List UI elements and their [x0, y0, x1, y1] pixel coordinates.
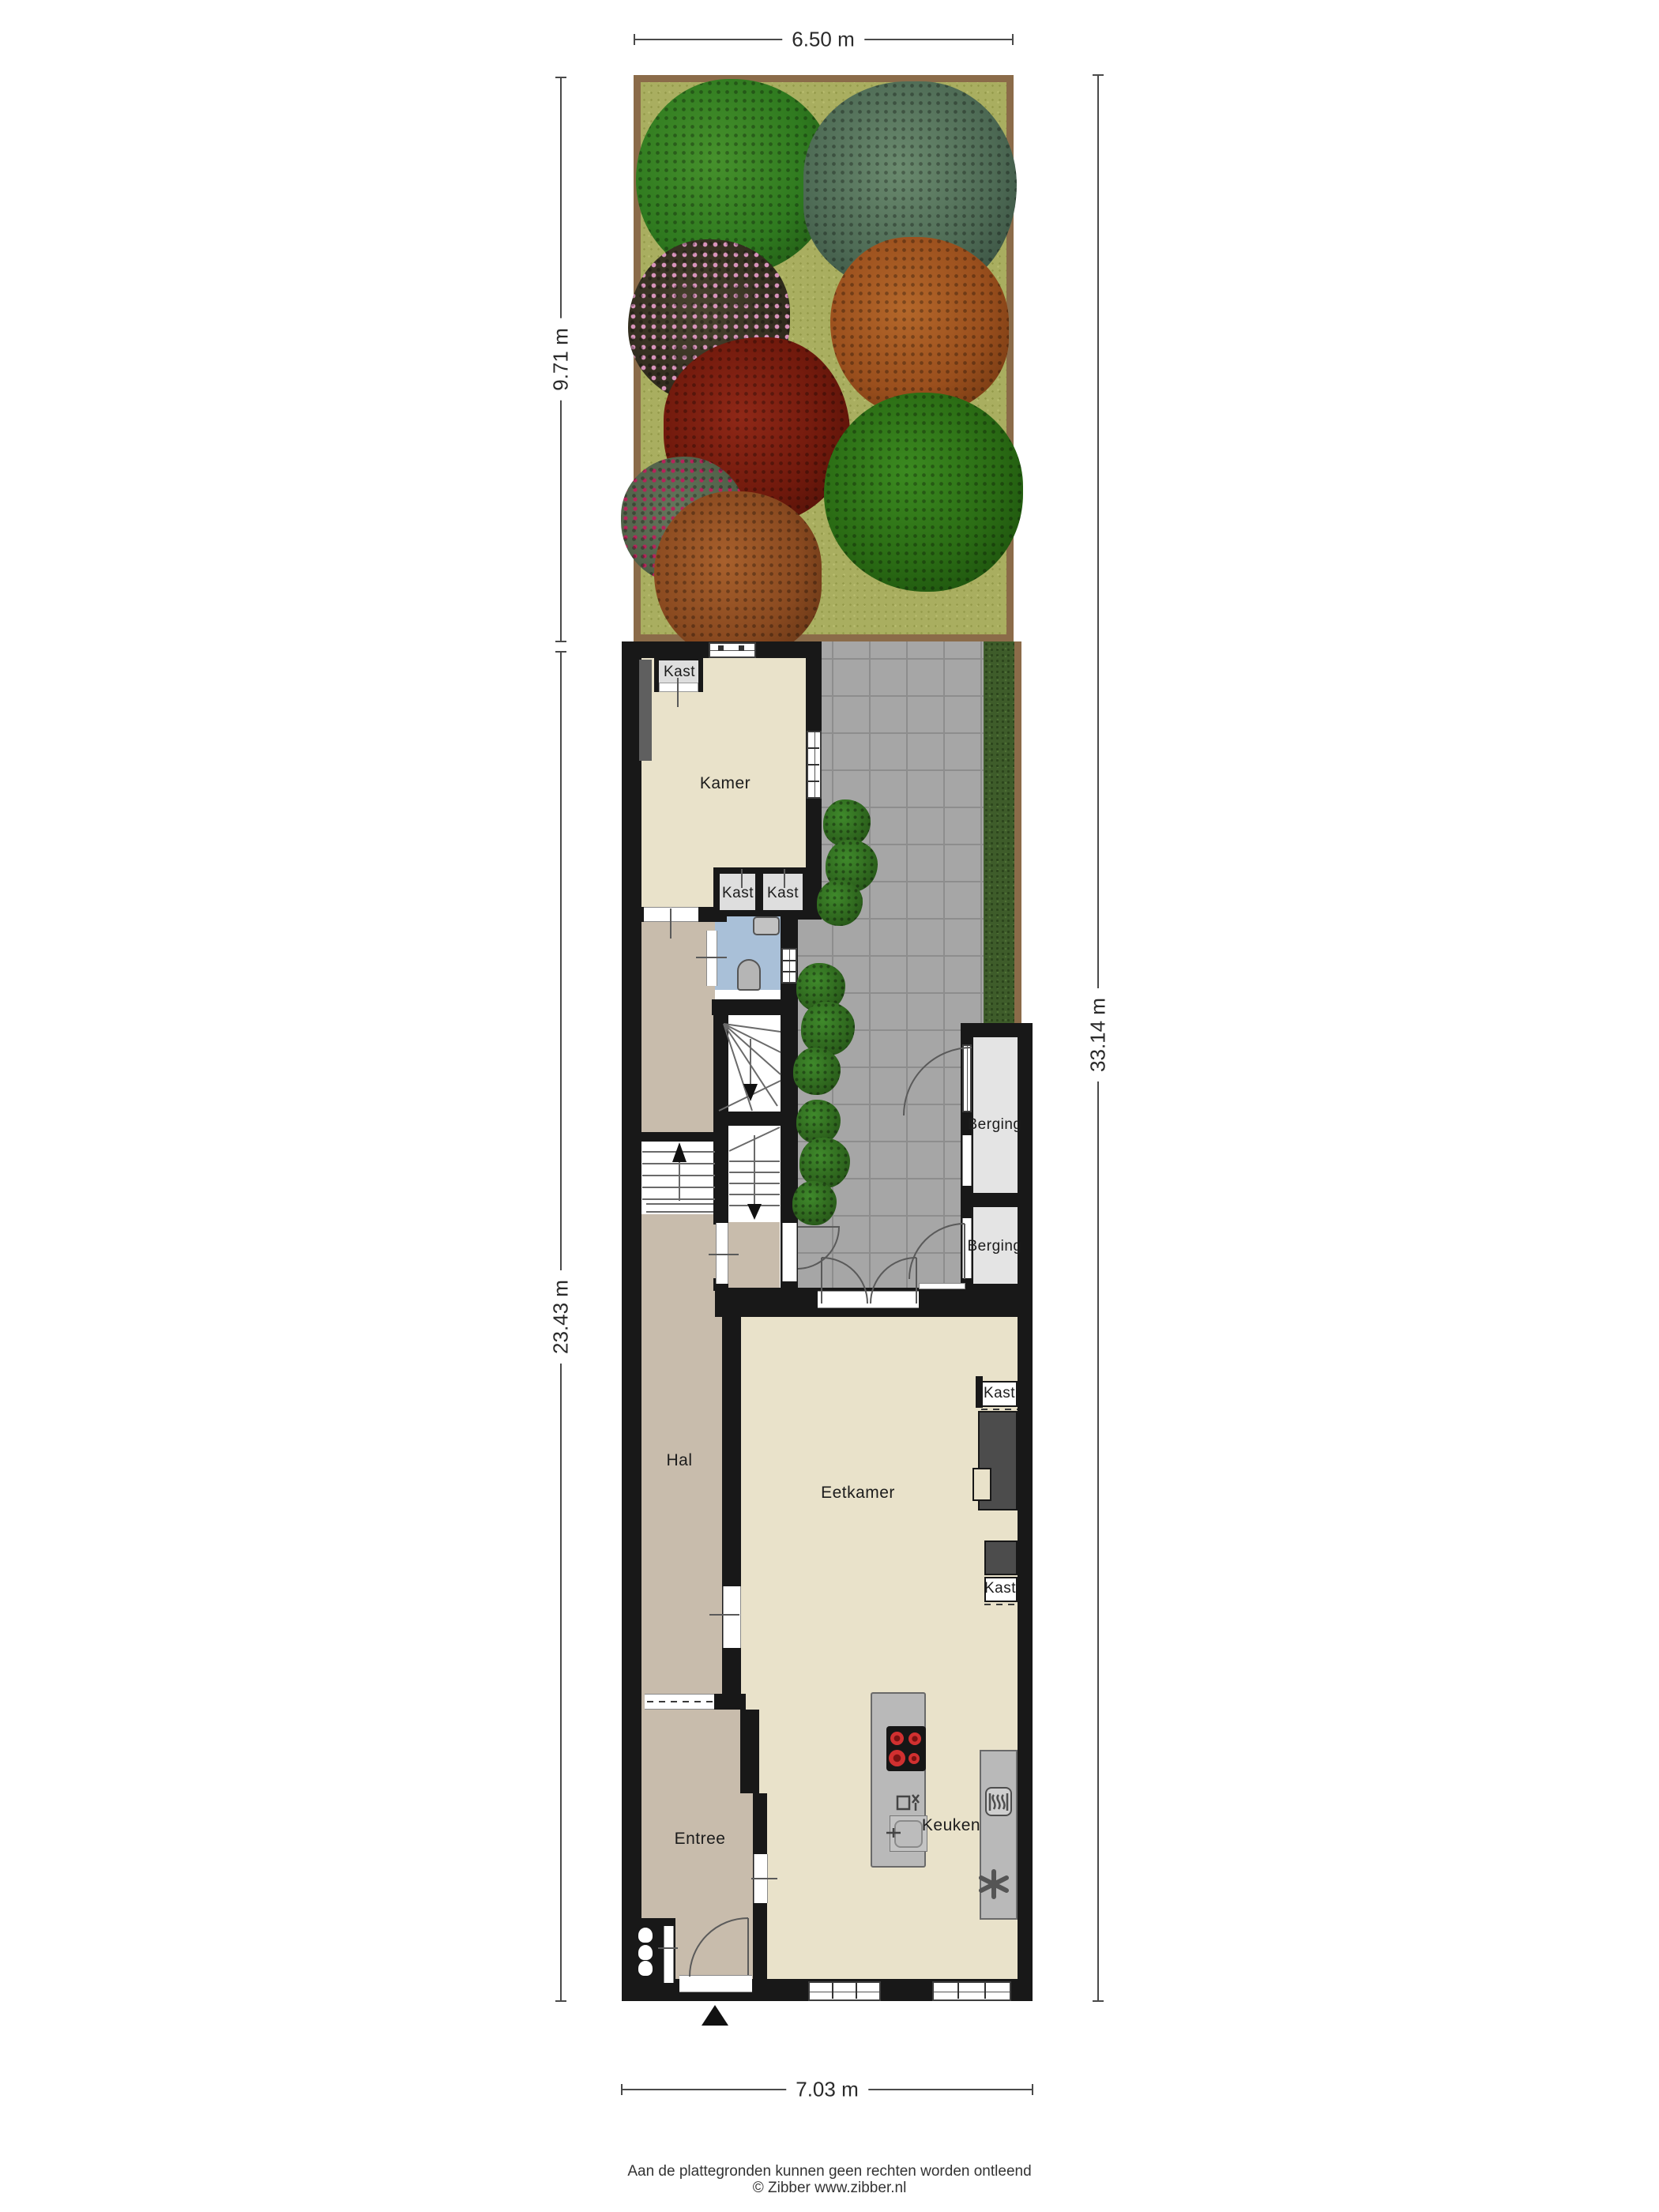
tree	[830, 237, 1009, 416]
bush	[792, 1181, 837, 1225]
fence	[1014, 641, 1021, 1023]
sink	[753, 916, 780, 935]
door-berging-upper	[962, 1135, 972, 1186]
window-berging	[962, 1044, 972, 1112]
front-door-opening	[679, 1975, 752, 1992]
wall	[740, 1710, 759, 1793]
lower-stairs	[728, 1126, 780, 1222]
burner	[908, 1732, 921, 1745]
meter-symbol	[638, 1961, 653, 1976]
wall	[641, 1132, 717, 1142]
meter-cupboard-door	[664, 1926, 674, 1983]
vestibule-floor	[728, 1222, 780, 1288]
garden	[634, 75, 1014, 641]
tree	[824, 393, 1023, 592]
room-label-berging: Berging	[968, 1238, 1022, 1255]
room-label-kast: Kast	[722, 885, 754, 902]
door-french	[818, 1291, 919, 1308]
wall	[717, 1112, 788, 1126]
disclaimer-text: Aan de plattegronden kunnen geen rechten…	[627, 2163, 1031, 2180]
door-hal-eetkamer	[723, 1586, 741, 1648]
bush	[817, 880, 863, 926]
wall	[622, 641, 641, 2001]
room-label-kast: Kast	[984, 1580, 1016, 1597]
meter-symbol	[638, 1945, 653, 1960]
bush-rust	[654, 491, 822, 659]
dimension-bottom-width: 7.03 m	[786, 2078, 868, 2102]
wall	[961, 1193, 1019, 1207]
room-eetkamer-floor	[741, 1317, 1018, 1983]
floorplan-page: Kamer Kast Kast Kast Berging Berging Hal…	[0, 0, 1659, 2212]
wall-panel	[639, 660, 652, 761]
entrance-arrow	[702, 2005, 728, 2026]
door-bathroom	[706, 931, 717, 986]
door-vestibule-right	[782, 1223, 797, 1281]
room-label-kast: Kast	[984, 1385, 1015, 1402]
closet-door	[659, 683, 698, 692]
window	[932, 1981, 1011, 2001]
copyright-text: © Zibber www.zibber.nl	[753, 2180, 907, 2197]
room-label-eetkamer: Eetkamer	[821, 1484, 895, 1503]
door-vestibule-left	[716, 1223, 728, 1284]
door-entree-eetkamer	[754, 1854, 768, 1903]
room-label-kamer: Kamer	[700, 774, 750, 793]
room-label-entree: Entree	[675, 1830, 726, 1849]
chimney-inset	[972, 1468, 991, 1501]
wall	[961, 1023, 1033, 1037]
room-label-kast: Kast	[664, 664, 695, 681]
dimension-garden-depth: 9.71 m	[549, 318, 574, 401]
hedge	[984, 641, 1014, 1023]
bush	[793, 1048, 841, 1095]
burner	[890, 1732, 904, 1745]
window	[781, 948, 797, 984]
window	[807, 731, 822, 799]
meter-symbol	[638, 1928, 653, 1943]
dimension-total-depth: 33.14 m	[1086, 988, 1111, 1082]
wall	[713, 1694, 746, 1710]
wall	[961, 1284, 1033, 1298]
room-label-berging: Berging	[968, 1116, 1022, 1134]
opening	[644, 907, 698, 922]
wall-right	[1018, 1023, 1033, 2001]
berging-upper-floor	[973, 1037, 1018, 1193]
bush	[799, 1138, 850, 1188]
hallway-floor	[641, 907, 724, 1710]
kitchen-counter	[980, 1750, 1018, 1920]
oven-icon	[985, 1787, 1012, 1816]
opening-hal-entree	[645, 1694, 714, 1710]
burner	[908, 1753, 920, 1764]
kitchen-sink-basin	[894, 1820, 923, 1848]
straight-stairs	[641, 1140, 717, 1214]
dimension-top-width: 6.50 m	[782, 28, 864, 52]
window-sill	[919, 1283, 965, 1289]
room-label-hal: Hal	[666, 1451, 692, 1470]
window	[709, 642, 756, 658]
room-label-keuken: Keuken	[922, 1816, 980, 1835]
cabinet	[984, 1540, 1018, 1575]
window	[808, 1981, 881, 2001]
burner	[889, 1750, 905, 1766]
room-label-kast: Kast	[767, 885, 799, 902]
dimension-house-depth: 23.43 m	[549, 1270, 574, 1364]
toilet	[737, 959, 761, 991]
